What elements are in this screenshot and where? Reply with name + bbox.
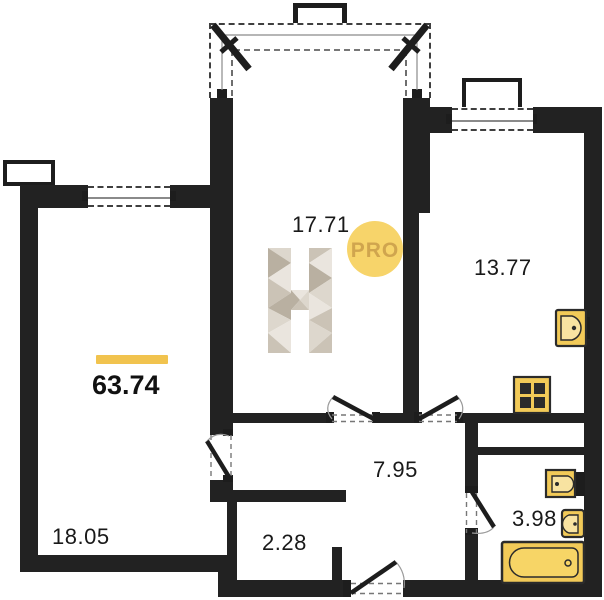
area-label-kitchen: 13.77 xyxy=(474,255,532,281)
stove-icon xyxy=(514,377,550,413)
door-bathroom xyxy=(467,492,495,533)
area-label-closet: 2.28 xyxy=(262,530,307,556)
washbasin-icon xyxy=(546,470,585,497)
door-living xyxy=(328,397,374,422)
balcony-glazing xyxy=(213,25,427,96)
bathtub-icon xyxy=(502,542,584,583)
door-bedroom xyxy=(207,434,231,480)
area-label-living: 17.71 xyxy=(292,212,350,238)
pro-badge-label: PRO xyxy=(351,239,400,262)
area-label-bedroom: 18.05 xyxy=(52,524,110,550)
floor-plan: PRO 18.05 17.71 13.77 7.95 2.28 3.98 63.… xyxy=(0,0,604,600)
total-area-value: 63.74 xyxy=(92,370,160,401)
area-label-bathroom: 3.98 xyxy=(512,506,557,532)
kitchen-sink-icon xyxy=(556,310,590,346)
watermark-h-logo xyxy=(268,248,332,353)
pro-badge: PRO xyxy=(347,221,403,277)
area-label-hallway: 7.95 xyxy=(373,457,418,483)
total-area-accent-bar xyxy=(96,355,168,364)
toilet-icon xyxy=(562,510,584,537)
door-kitchen xyxy=(419,397,463,422)
door-entrance xyxy=(351,562,404,594)
